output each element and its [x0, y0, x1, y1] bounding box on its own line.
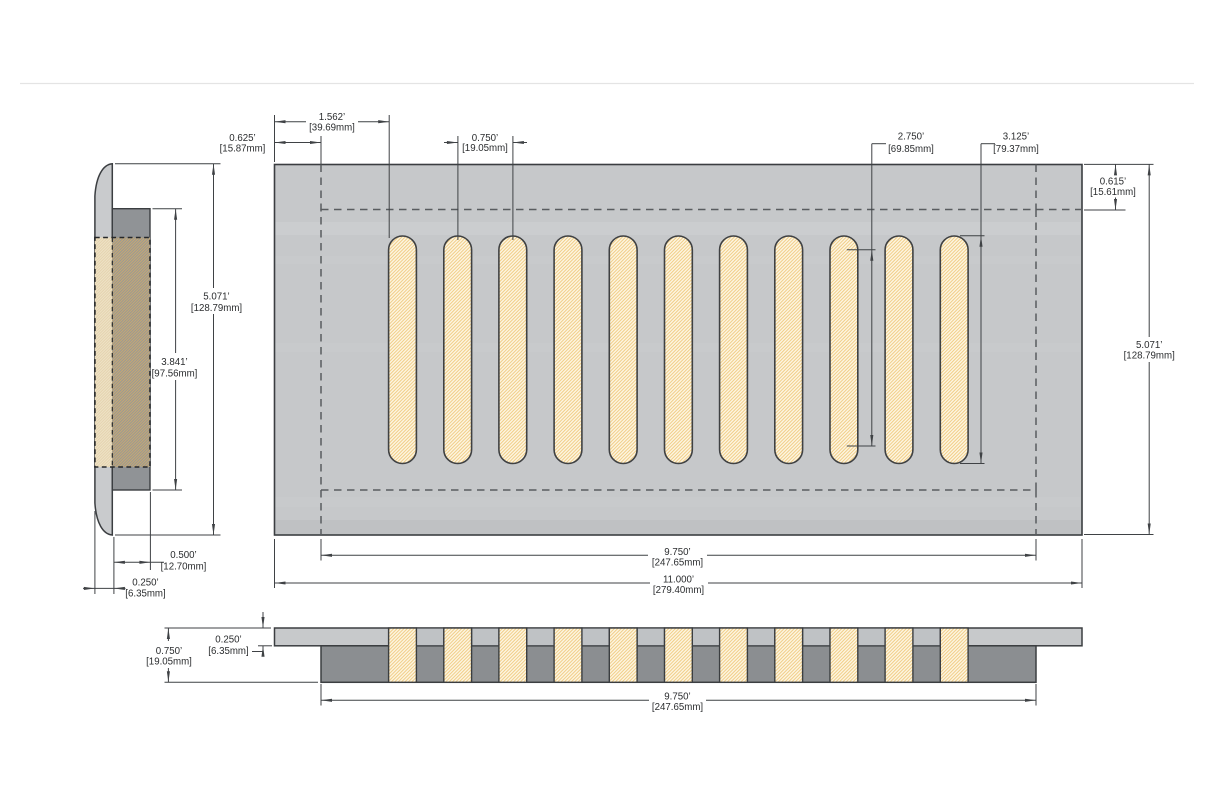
svg-text:0.625’: 0.625’ — [229, 133, 255, 144]
svg-text:[15.61mm]: [15.61mm] — [1090, 187, 1136, 198]
svg-text:2.750’: 2.750’ — [898, 132, 924, 143]
svg-text:[247.65mm]: [247.65mm] — [652, 702, 703, 713]
svg-text:[15.87mm]: [15.87mm] — [220, 144, 266, 155]
svg-text:[69.85mm]: [69.85mm] — [888, 144, 934, 155]
svg-text:11.000’: 11.000’ — [663, 575, 694, 586]
svg-text:0.500’: 0.500’ — [170, 550, 196, 561]
svg-text:[19.05mm]: [19.05mm] — [146, 657, 192, 668]
svg-text:0.250’: 0.250’ — [215, 635, 241, 646]
svg-text:[247.65mm]: [247.65mm] — [652, 558, 703, 569]
svg-text:3.125’: 3.125’ — [1003, 132, 1029, 143]
svg-text:9.750’: 9.750’ — [664, 692, 690, 703]
svg-text:[19.05mm]: [19.05mm] — [462, 143, 508, 154]
svg-text:[6.35mm]: [6.35mm] — [208, 646, 248, 657]
svg-text:[97.56mm]: [97.56mm] — [152, 369, 198, 380]
svg-text:[279.40mm]: [279.40mm] — [653, 585, 704, 596]
svg-text:[39.69mm]: [39.69mm] — [309, 123, 355, 134]
svg-text:[128.79mm]: [128.79mm] — [1124, 351, 1175, 362]
svg-text:[79.37mm]: [79.37mm] — [993, 144, 1039, 155]
svg-text:0.615’: 0.615’ — [1100, 177, 1126, 188]
svg-text:0.250’: 0.250’ — [132, 578, 158, 589]
svg-text:9.750’: 9.750’ — [664, 547, 690, 558]
svg-text:0.750’: 0.750’ — [156, 646, 182, 657]
svg-text:[6.35mm]: [6.35mm] — [125, 589, 165, 600]
svg-text:5.071’: 5.071’ — [1136, 340, 1162, 351]
svg-text:[128.79mm]: [128.79mm] — [191, 303, 242, 314]
svg-text:3.841’: 3.841’ — [161, 357, 187, 368]
svg-text:5.071’: 5.071’ — [203, 292, 229, 303]
svg-text:1.562’: 1.562’ — [319, 112, 345, 123]
svg-text:[12.70mm]: [12.70mm] — [161, 562, 207, 573]
